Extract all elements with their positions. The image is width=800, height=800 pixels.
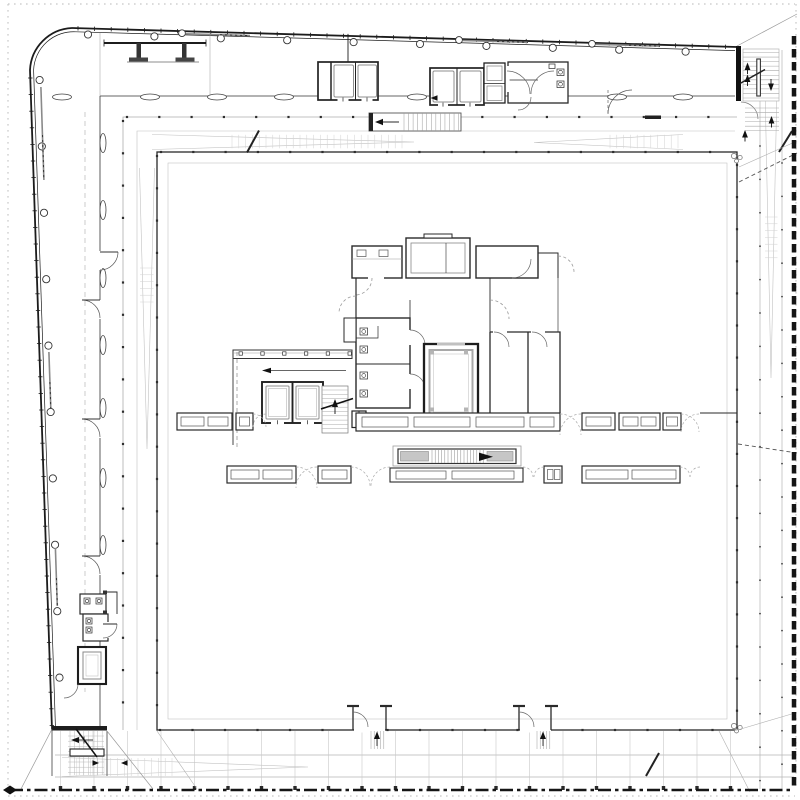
canopy-soffit	[233, 350, 352, 359]
column-dot	[709, 151, 711, 153]
column-dot	[675, 116, 677, 118]
round-column	[36, 76, 43, 83]
door-gap	[98, 251, 102, 270]
column-dot	[122, 217, 124, 219]
column-dot	[736, 581, 738, 583]
column-dot	[122, 185, 124, 187]
column-dot	[736, 228, 738, 230]
colonnade-dot-east-2	[781, 429, 783, 431]
door-swing-arc-dashed	[490, 300, 509, 319]
column-dot	[644, 151, 646, 153]
column-dot	[122, 346, 124, 348]
column-dot	[354, 151, 356, 153]
colonnade-dot-east-2	[781, 329, 783, 331]
corridor-wall	[538, 253, 558, 278]
exterior-wall-north	[72, 28, 737, 47]
door-swing-arc	[100, 252, 118, 270]
round-column	[616, 46, 623, 53]
north-stair	[369, 113, 461, 131]
column-dot	[156, 252, 158, 254]
column-dot	[736, 613, 738, 615]
track-rail	[49, 352, 51, 408]
column-dot	[546, 116, 548, 118]
column-dot	[159, 729, 161, 731]
colonnade-dot-east-1	[759, 546, 761, 548]
wall-cap	[103, 611, 107, 615]
round-column	[43, 276, 50, 283]
column-dot	[223, 116, 225, 118]
column-dot	[418, 151, 420, 153]
column-dot	[352, 116, 354, 118]
column-dot	[736, 517, 738, 519]
door-swing-arc	[410, 330, 425, 345]
column-dot	[256, 729, 258, 731]
column-dot	[289, 729, 291, 731]
round-column	[284, 37, 291, 44]
west-shaft	[78, 647, 106, 684]
door-gap	[408, 374, 412, 389]
door-swing-arc	[494, 332, 509, 347]
round-column	[54, 608, 61, 615]
track-anchor	[456, 37, 463, 44]
column-dot	[320, 116, 322, 118]
door-swing-arc	[64, 684, 78, 698]
direction-arrow	[71, 737, 79, 743]
curtainwall-inner-west	[34, 70, 56, 726]
colonnade-dot-east-1	[759, 179, 761, 181]
room-stub-wall	[106, 592, 117, 614]
column-dot	[122, 572, 124, 574]
sight-diagonal	[157, 731, 197, 789]
column-dot	[122, 701, 124, 703]
column-dot	[516, 729, 518, 731]
match-slash	[646, 753, 659, 776]
colonnade-dot-east-1	[759, 279, 761, 281]
colonnade-dot-east-1	[759, 746, 761, 748]
stair-rail	[757, 59, 761, 96]
round-column	[40, 209, 47, 216]
column-dot	[289, 151, 291, 153]
canopy-foot	[176, 58, 195, 62]
round-column	[45, 342, 52, 349]
door-swing-arc-dashed	[690, 467, 700, 477]
column-dot	[156, 672, 158, 674]
door-swing-arc-dashed	[680, 467, 690, 477]
up-arrow	[742, 130, 748, 138]
oval-column	[100, 399, 106, 418]
door-gap	[408, 330, 412, 345]
colonnade-dot-east-2	[781, 162, 783, 164]
colonnade-dot-east-2	[781, 630, 783, 632]
soffit-light	[261, 352, 264, 355]
service-room	[406, 238, 470, 278]
canopy-leg	[182, 43, 187, 58]
column-dot	[643, 116, 645, 118]
sight-diagonal	[719, 731, 750, 792]
wall-segment	[227, 466, 296, 483]
direction-arrow	[93, 760, 100, 766]
canopy-leg	[137, 43, 142, 58]
column-dot	[321, 729, 323, 731]
column-dot	[736, 196, 738, 198]
room-cap	[424, 234, 452, 238]
curtainwall-inner-corner	[34, 32, 76, 70]
southwest-stair	[52, 726, 128, 776]
column-dot	[736, 260, 738, 262]
south-entries	[347, 706, 558, 749]
corner-pad	[464, 351, 468, 355]
escalator	[393, 446, 521, 466]
track-anchor	[179, 30, 186, 37]
column-dot	[736, 485, 738, 487]
track-anchor	[589, 40, 596, 47]
colonnade-dot-east-1	[759, 646, 761, 648]
round-column	[84, 31, 91, 38]
storefront-row-north	[177, 413, 737, 435]
door-swing-arc-dashed	[523, 467, 533, 477]
colonnade-dot-east-2	[781, 296, 783, 298]
corner-pad	[464, 408, 468, 412]
column-dot	[156, 316, 158, 318]
column-dot	[515, 151, 517, 153]
elevator-bank-north-1	[318, 62, 378, 102]
column-dot	[122, 508, 124, 510]
column-foot	[595, 786, 598, 790]
floor-plan-page	[0, 0, 800, 800]
door-gap	[518, 95, 531, 99]
colonnade-dot-east-1	[759, 245, 761, 247]
oval-column	[53, 94, 72, 100]
match-slash	[779, 131, 792, 152]
sight-diagonal-dashed	[738, 444, 797, 453]
soffit-light	[239, 352, 242, 355]
canopy-foot	[129, 58, 148, 62]
restroom-north	[506, 62, 568, 110]
service-room	[352, 246, 402, 278]
column-dot	[736, 645, 738, 647]
colonnade-dot-east-1	[759, 346, 761, 348]
round-column	[56, 674, 63, 681]
property-corner-diamond	[3, 786, 17, 795]
escalator-wedge-north-2	[534, 135, 683, 150]
colonnade-dot-east-1	[759, 145, 761, 147]
column-dot	[122, 475, 124, 477]
column-dot	[451, 729, 453, 731]
column-dot	[736, 678, 738, 680]
column-dot	[610, 116, 612, 118]
column-dot	[581, 729, 583, 731]
northeast-stair	[740, 49, 779, 142]
track-rail	[55, 548, 57, 606]
column-dot	[578, 116, 580, 118]
colonnade-dot-east-1	[759, 680, 761, 682]
northeast-wall-bar	[736, 46, 741, 101]
column-dot	[122, 669, 124, 671]
column-dot	[122, 604, 124, 606]
column-dot	[160, 151, 162, 153]
door-swing-arc	[741, 102, 758, 119]
elevator-bank-north-2	[430, 63, 505, 107]
door-swing-arc-dashed	[560, 414, 581, 435]
room-walls	[490, 332, 560, 413]
column-dot	[736, 453, 738, 455]
column-dot	[156, 639, 158, 641]
round-column	[350, 39, 357, 46]
column-dot	[707, 116, 709, 118]
column-dot	[736, 421, 738, 423]
escalator-wedge-west	[140, 168, 155, 449]
corner-column-cloud	[731, 153, 736, 158]
wall-segment	[619, 413, 660, 430]
colonnade-dot-east-2	[781, 363, 783, 365]
core-elevators	[262, 382, 323, 424]
column-dot	[677, 151, 679, 153]
column-dot	[122, 314, 124, 316]
oval-column	[100, 201, 106, 220]
exterior-wall-corner-arc	[30, 28, 72, 70]
colonnade-dot-east-2	[781, 229, 783, 231]
column-dot	[386, 729, 388, 731]
core-east-rooms	[490, 330, 560, 413]
round-column	[49, 475, 56, 482]
ramp-wedge-east	[765, 62, 778, 378]
door-swing-arc	[410, 374, 425, 389]
round-column	[483, 42, 490, 49]
oval-column	[141, 94, 160, 100]
column-dot	[122, 378, 124, 380]
service-room	[476, 246, 538, 278]
oval-column	[100, 269, 106, 288]
column-dot	[736, 357, 738, 359]
colonnade-dot-east-2	[781, 530, 783, 532]
round-column	[416, 40, 423, 47]
column-dot	[612, 151, 614, 153]
colonnade-dot-east-2	[781, 196, 783, 198]
column-dot	[122, 637, 124, 639]
colonnade-dot-east-1	[759, 579, 761, 581]
wall-segment	[582, 413, 615, 430]
stair-end-wall	[369, 113, 373, 131]
door-swing-arc-dashed	[534, 467, 544, 477]
column-dot	[419, 729, 421, 731]
wall-cap	[103, 591, 107, 595]
column-dot	[484, 729, 486, 731]
door-swing-arc-dashed	[351, 467, 370, 486]
colonnade-dot-east-1	[759, 312, 761, 314]
sight-diagonal	[734, 713, 795, 731]
column-dot	[514, 116, 516, 118]
column-dot	[580, 151, 582, 153]
round-column	[51, 541, 58, 548]
colonnade-dot-east-2	[781, 697, 783, 699]
column-dot	[614, 729, 616, 731]
sight-diagonal	[21, 729, 52, 789]
column-dot	[126, 116, 128, 118]
colonnade-dot-east-1	[759, 513, 761, 515]
column-foot	[293, 786, 296, 790]
column-dot	[156, 187, 158, 189]
soffit-light	[283, 352, 286, 355]
oval-column	[208, 94, 227, 100]
column-dot	[736, 549, 738, 551]
column-dot	[122, 281, 124, 283]
column-dot	[122, 120, 124, 122]
wall-segment	[177, 413, 232, 430]
colonnade-dot-east-2	[781, 563, 783, 565]
colonnade-dot-east-2	[781, 663, 783, 665]
door-swing-arc	[608, 90, 632, 114]
column-dot	[483, 151, 485, 153]
colonnade-dot-east-1	[759, 412, 761, 414]
column-dot	[287, 116, 289, 118]
column-dot	[156, 575, 158, 577]
elevator-bank-frame	[318, 62, 378, 100]
colonnade-dot-east-2	[781, 596, 783, 598]
colonnade-dot-east-2	[781, 496, 783, 498]
escalator-drum	[401, 452, 429, 462]
door-swing-arc-dashed	[355, 278, 372, 295]
core-south-band	[356, 413, 560, 431]
column-dot	[257, 151, 259, 153]
column-dot	[224, 729, 226, 731]
restroom-walls	[356, 318, 410, 408]
column-dot	[122, 540, 124, 542]
oval-column	[100, 469, 106, 488]
door-swing-arc	[519, 712, 534, 727]
column-dot	[156, 446, 158, 448]
corner-pad	[430, 351, 434, 355]
colonnade-dot-east-1	[759, 479, 761, 481]
column-dot	[122, 411, 124, 413]
floor-plan-canvas	[0, 0, 800, 800]
wall-segment	[390, 468, 523, 482]
stair-head-wall	[52, 726, 107, 731]
column-dot	[156, 510, 158, 512]
core-restrooms	[344, 318, 425, 408]
colonnade-dot-east-2	[781, 262, 783, 264]
round-column	[47, 408, 54, 415]
sight-diagonal	[737, 14, 797, 46]
core-service-rooms	[339, 234, 574, 332]
round-column	[217, 35, 224, 42]
column-dot	[736, 710, 738, 712]
door-gap	[506, 66, 510, 92]
column-dot	[321, 151, 323, 153]
column-dot	[225, 151, 227, 153]
curtainwall-inner-north	[76, 32, 735, 51]
column-dot	[191, 116, 193, 118]
column-dot	[481, 116, 483, 118]
column-dot	[156, 478, 158, 480]
column-dot	[122, 443, 124, 445]
exterior-wall-west	[30, 70, 52, 730]
wall-segment	[236, 413, 253, 430]
west-rooms	[64, 591, 117, 699]
column-dot	[736, 164, 738, 166]
column-dot	[736, 324, 738, 326]
corner-pad	[430, 408, 434, 412]
column-dot	[156, 349, 158, 351]
door-swing-arc	[353, 712, 368, 727]
wall-cap	[645, 116, 661, 120]
oval-column	[100, 134, 106, 153]
wall-segment	[663, 413, 681, 430]
oval-column	[100, 536, 106, 555]
sight-diagonal-dashed	[739, 153, 797, 182]
colonnade-dot-east-1	[759, 613, 761, 615]
corner-column-cloud	[735, 159, 739, 163]
column-dot	[736, 292, 738, 294]
oval-column	[408, 94, 427, 100]
soffit-light	[304, 352, 307, 355]
column-dot	[122, 152, 124, 154]
oval-column	[100, 336, 106, 355]
column-dot	[156, 381, 158, 383]
up-arrow	[374, 732, 380, 740]
round-column	[38, 143, 45, 150]
column-dot	[451, 151, 453, 153]
colonnade-dot-east-1	[759, 379, 761, 381]
colonnade-dot-east-2	[781, 763, 783, 765]
colonnade-dot-east-2	[781, 463, 783, 465]
round-column	[151, 33, 158, 40]
column-dot	[156, 704, 158, 706]
column-dot	[156, 284, 158, 286]
column-dot	[158, 116, 160, 118]
restroom-walls	[508, 62, 568, 103]
corner-column-cloud	[731, 723, 736, 728]
oval-column	[674, 94, 693, 100]
sight-diagonal	[739, 141, 797, 167]
column-foot	[226, 786, 229, 790]
closet	[344, 318, 356, 342]
column-dot	[156, 220, 158, 222]
wall-segment	[582, 466, 680, 483]
match-slash	[247, 131, 259, 153]
colonnade-dot-east-2	[781, 730, 783, 732]
column-dot	[646, 729, 648, 731]
wall-segment	[318, 466, 351, 483]
column-dot	[156, 607, 158, 609]
corner-column-cloud	[738, 155, 742, 159]
column-dot	[156, 155, 158, 157]
direction-arrow	[262, 368, 271, 373]
colonnade-dot-east-2	[781, 396, 783, 398]
soffit-light	[326, 352, 329, 355]
colonnade-dot-east-1	[759, 780, 761, 782]
door-swing-arc	[532, 332, 547, 347]
stair-landing	[70, 749, 104, 756]
round-column	[549, 44, 556, 51]
column-dot	[191, 729, 193, 731]
door-swing-arc-dashed	[558, 256, 574, 272]
door-swing-arc-dashed	[296, 467, 317, 488]
round-column	[682, 48, 689, 55]
sight-diagonal	[107, 731, 153, 789]
column-dot	[156, 543, 158, 545]
column-dot	[386, 151, 388, 153]
soffit-light	[348, 352, 351, 355]
door-swing-arc-dashed	[339, 296, 356, 313]
column-dot	[255, 116, 257, 118]
oval-column	[275, 94, 294, 100]
column-dot	[736, 389, 738, 391]
column-dot	[548, 151, 550, 153]
colonnade-dot-east-1	[759, 212, 761, 214]
colonnade-dot-east-1	[759, 713, 761, 715]
column-dot	[192, 151, 194, 153]
door-swing-arc-dashed	[371, 467, 390, 486]
